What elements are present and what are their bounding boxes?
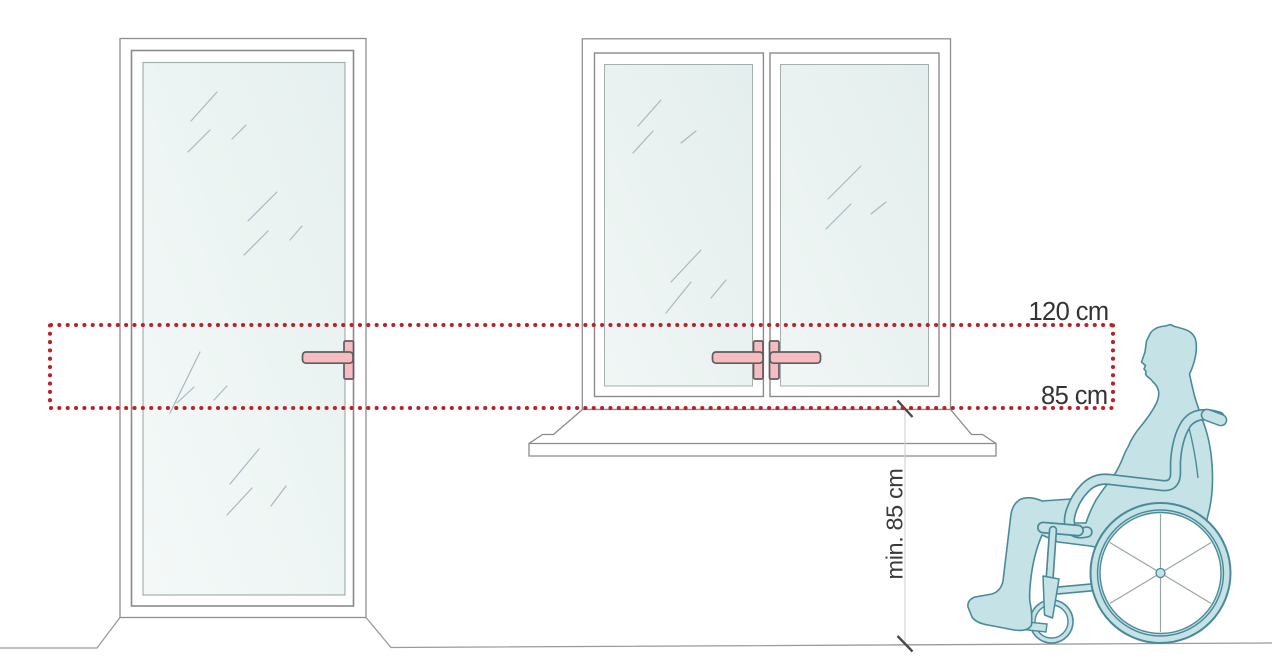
svg-text:min. 85 cm: min. 85 cm bbox=[882, 469, 908, 580]
svg-text:85 cm: 85 cm bbox=[1041, 382, 1107, 410]
svg-text:120 cm: 120 cm bbox=[1028, 298, 1108, 326]
